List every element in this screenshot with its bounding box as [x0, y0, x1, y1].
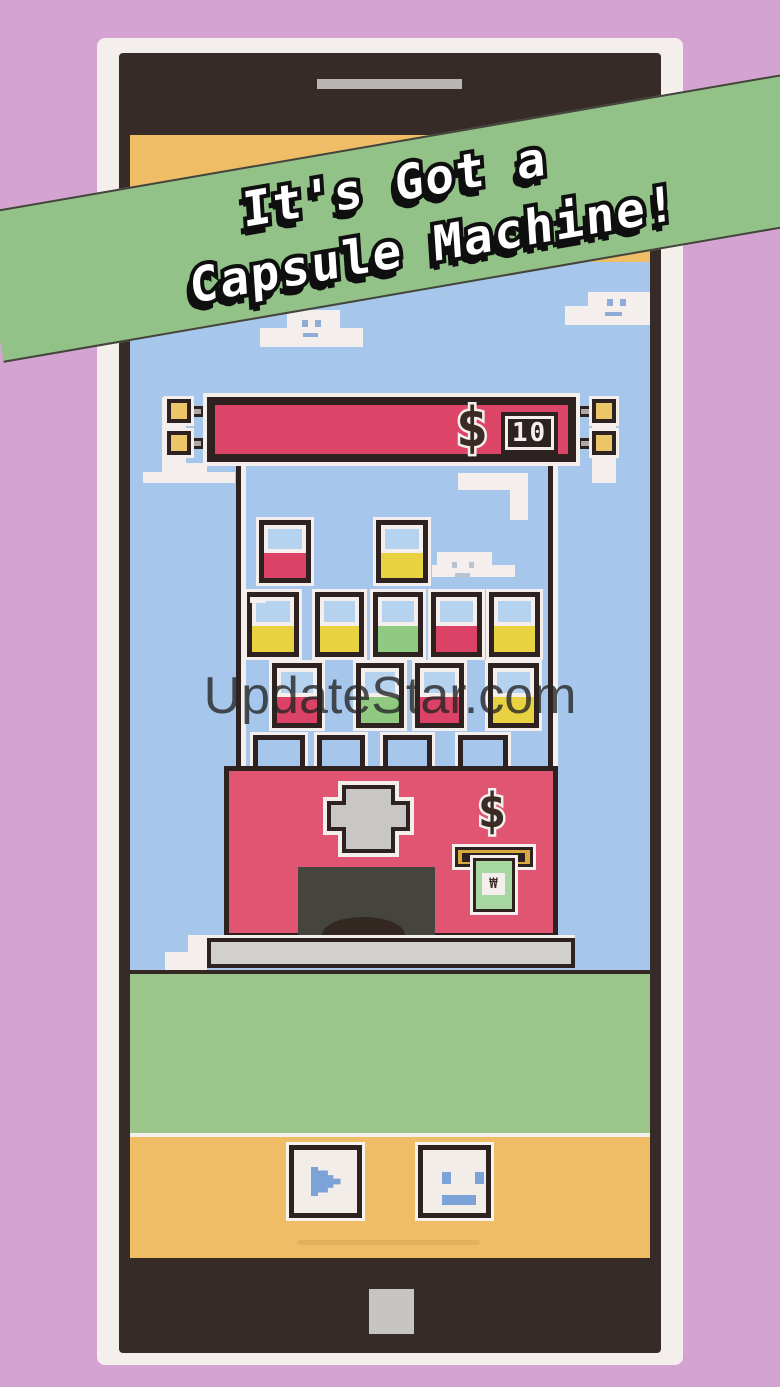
character-button[interactable]: [418, 1145, 491, 1218]
sign-connector: [578, 438, 592, 449]
sign-connector: [190, 438, 204, 449]
phone-speaker: [317, 79, 462, 89]
capsule-red: [431, 592, 482, 657]
machine-platform: [207, 938, 575, 968]
sign-bolt: [167, 399, 191, 423]
cloud-mouth: [303, 333, 318, 337]
cloud-mouth: [455, 573, 470, 577]
grass-ground: [130, 974, 650, 1133]
capsule-yellow: [315, 592, 364, 657]
capsule-yellow: [489, 592, 540, 657]
cloud-eye: [302, 320, 308, 327]
capsule-green: [373, 592, 423, 657]
sign-bolt: [167, 431, 191, 455]
sign-bolt: [592, 431, 616, 455]
capsule-yellow: [376, 520, 428, 583]
cloud-mouth: [605, 312, 622, 316]
cloud-eye: [607, 299, 613, 306]
corner-decoration: [510, 473, 528, 520]
promo-screenshot: $ 10 $ ₩: [0, 0, 780, 1387]
capsule-highlight: [250, 597, 266, 603]
play-button[interactable]: [289, 1145, 362, 1218]
sign-connector: [578, 406, 592, 417]
cloud-eye: [315, 320, 321, 327]
cloud-eye: [620, 299, 626, 306]
gesture-hint-line: [297, 1240, 480, 1245]
phone-home-button[interactable]: [369, 1289, 414, 1334]
price-value: 10: [512, 418, 547, 448]
watermark: UpdateStar.com: [0, 666, 780, 726]
capsule-red: [259, 520, 311, 583]
platform-step: [188, 935, 207, 952]
sign-bolt: [592, 399, 616, 423]
price-display: 10: [501, 412, 558, 454]
platform-step: [165, 952, 207, 972]
dollar-icon: $: [447, 399, 497, 457]
bill-currency-icon: ₩: [482, 873, 505, 895]
cloud-eye: [452, 562, 457, 568]
dollar-icon: $: [468, 785, 516, 837]
cloud-eye: [469, 562, 474, 568]
sign-connector: [190, 406, 204, 417]
play-arrow-icon: [311, 1167, 341, 1196]
